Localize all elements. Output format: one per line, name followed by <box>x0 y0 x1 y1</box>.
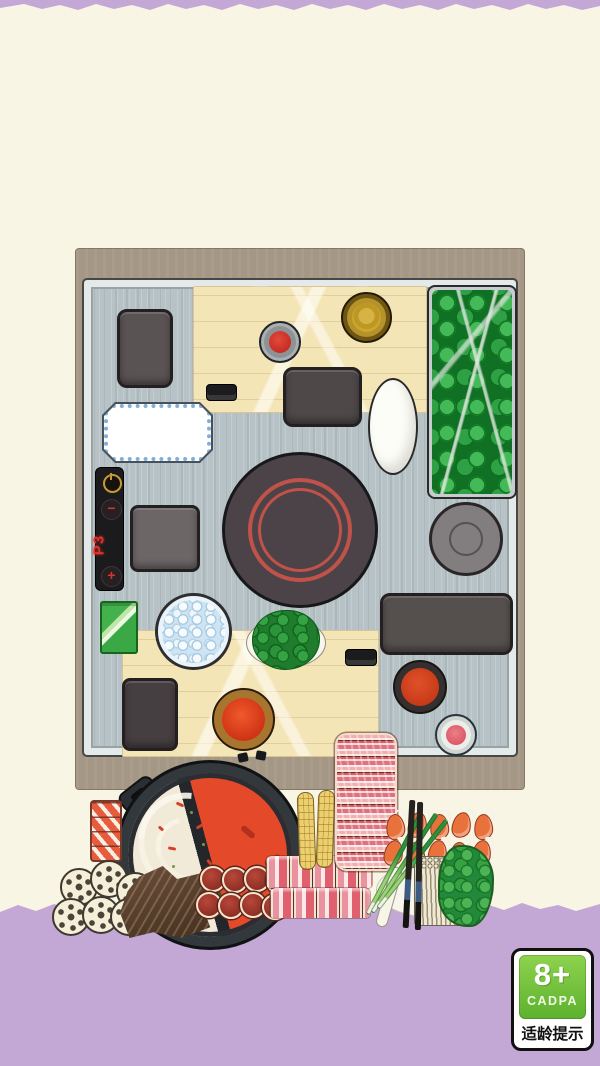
age-rating-age: 8+ <box>519 955 586 995</box>
hotpot-knob <box>255 750 266 761</box>
green-napkin[interactable] <box>100 601 138 654</box>
ice-bowl[interactable] <box>155 593 232 670</box>
chili-sauce-bowl-right[interactable] <box>393 660 447 714</box>
binder-clip-bottom[interactable] <box>345 649 377 666</box>
sesame-sauce <box>352 303 381 332</box>
tray-bottom-left[interactable] <box>122 678 178 751</box>
red-sauce <box>269 331 291 353</box>
gray-plate[interactable] <box>429 502 503 576</box>
broccoli[interactable] <box>438 845 494 927</box>
dotted-plate[interactable] <box>102 402 213 463</box>
chili-pepper <box>240 825 256 840</box>
power-icon[interactable] <box>103 474 122 493</box>
chili-sauce <box>401 668 439 706</box>
tray-center[interactable] <box>283 367 362 427</box>
age-rating-green-box: 8+ CADPA <box>519 955 586 1019</box>
lettuce <box>432 290 512 494</box>
beef-roll-row[interactable] <box>270 888 370 918</box>
stove-control-panel: − P3 + <box>95 467 124 591</box>
chili-sauce-bowl-bottom[interactable] <box>212 688 275 751</box>
torn-paper-top <box>0 0 600 14</box>
game-scene: − P3 + <box>0 0 600 1066</box>
heat-ring-icon <box>258 488 342 572</box>
pink-sauce-bowl[interactable] <box>435 714 477 756</box>
square-tray-left[interactable] <box>130 505 200 572</box>
lettuce-tray[interactable] <box>427 285 517 499</box>
corn-cob <box>297 792 317 871</box>
dotted-plate-rim <box>104 404 211 461</box>
tray-right[interactable] <box>380 593 513 655</box>
pink-sauce <box>446 725 466 745</box>
herb-dot <box>172 865 175 868</box>
parsley[interactable] <box>252 610 320 670</box>
shrimp <box>450 811 472 839</box>
age-rating-caption: 适龄提示 <box>514 1022 591 1044</box>
red-sauce-bowl-top[interactable] <box>259 321 301 363</box>
salmon-slab[interactable] <box>90 800 122 862</box>
herb-dot <box>202 843 205 846</box>
oval-plate[interactable] <box>368 378 418 475</box>
plus-button[interactable]: + <box>101 566 122 587</box>
binder-clip-top[interactable] <box>206 384 237 401</box>
stove-display: P3 <box>91 531 131 560</box>
corn-group[interactable] <box>296 790 338 872</box>
herb-dot <box>190 811 193 814</box>
corn-cob <box>316 790 336 869</box>
sesame-sauce-bowl[interactable] <box>341 292 392 343</box>
chili-sauce <box>222 698 265 741</box>
tray-top-left[interactable] <box>117 309 173 388</box>
induction-cooker[interactable] <box>222 452 378 608</box>
age-rating-org: CADPA <box>519 994 586 1008</box>
age-rating-badge: 8+ CADPA 适龄提示 <box>511 948 594 1051</box>
minus-button[interactable]: − <box>101 499 122 520</box>
